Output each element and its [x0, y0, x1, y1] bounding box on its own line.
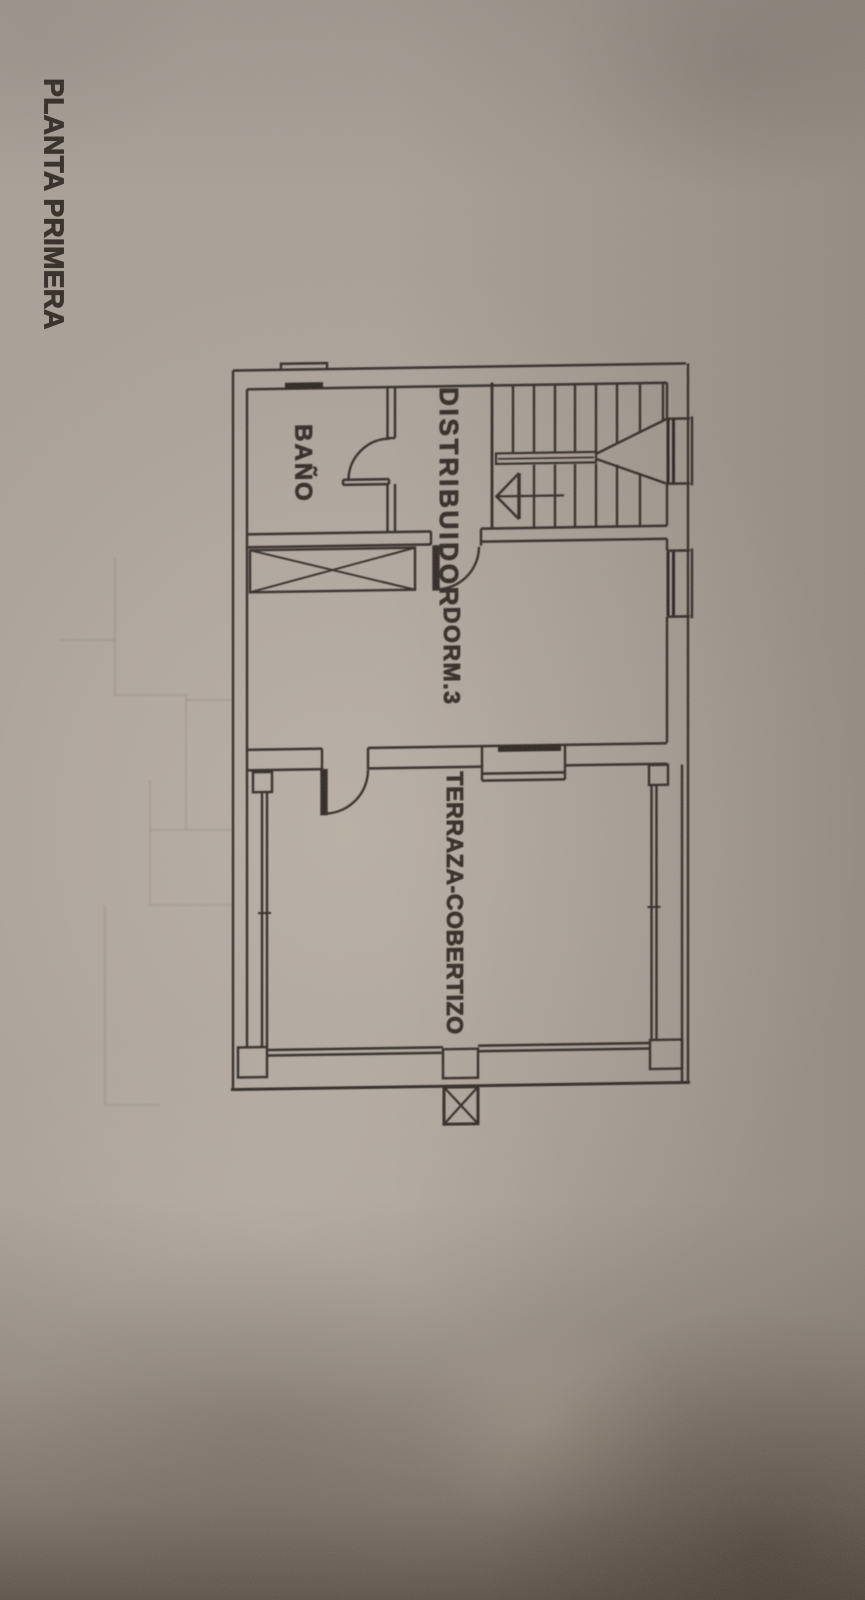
- svg-text:DISTRIBUIDOR: DISTRIBUIDOR: [434, 387, 464, 609]
- svg-text:BAÑO: BAÑO: [290, 424, 318, 503]
- svg-text:PLANTA PRIMERA: PLANTA PRIMERA: [39, 78, 70, 330]
- svg-text:TERRAZA-COBERTIZO: TERRAZA-COBERTIZO: [442, 771, 468, 1035]
- svg-text:DORM.3: DORM.3: [439, 607, 465, 706]
